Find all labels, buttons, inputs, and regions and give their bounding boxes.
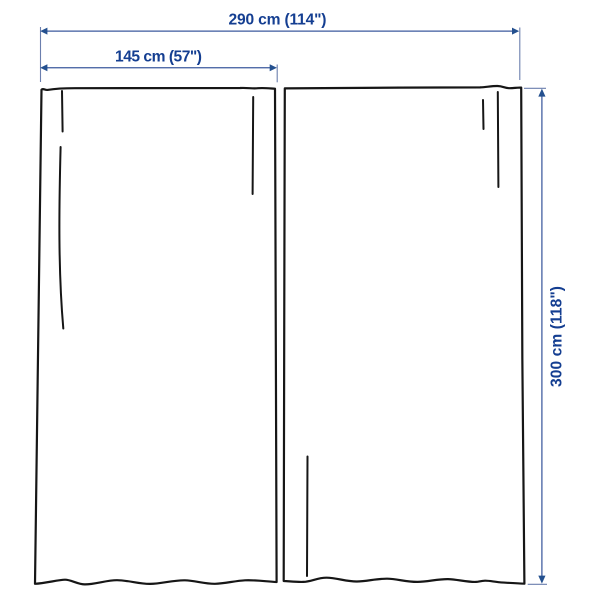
svg-text:300 cm (118"): 300 cm (118") [549,286,566,387]
svg-text:145 cm (57"): 145 cm (57") [115,49,202,66]
svg-text:290 cm (114"): 290 cm (114") [229,12,327,29]
